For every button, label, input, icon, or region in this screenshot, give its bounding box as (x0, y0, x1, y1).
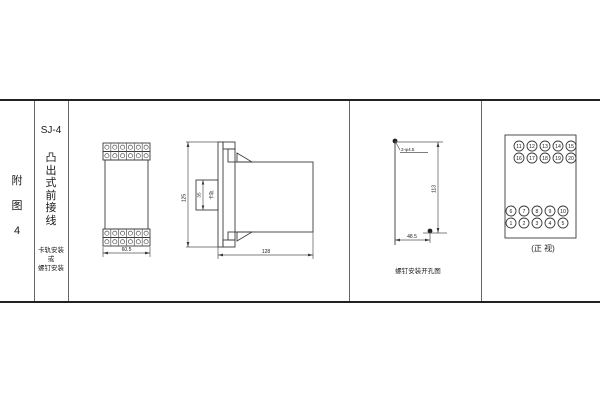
holes-label-text: 2-φ4.5 (401, 147, 415, 152)
type-title: 凸 出 式 前 接 线 (34, 152, 68, 227)
terminal-group-bottom: 6 7 8 9 10 1 2 3 4 5 (506, 206, 568, 228)
type-char-4: 前 (46, 190, 57, 203)
slot-dim-text: 35 (197, 192, 202, 198)
relay-body-side (235, 162, 313, 232)
front-plate (218, 142, 223, 247)
drill-diagram-caption: 螺钉安装开孔图 (383, 265, 453, 275)
terminal-view-caption: (正 视) (498, 243, 588, 254)
type-char-5: 接 (46, 202, 57, 215)
horizontal-dim-text: 48.5 (407, 234, 417, 240)
depth-dimension: 128 (218, 232, 313, 259)
terminal-15: 15 (568, 144, 574, 150)
terminal-3: 3 (536, 221, 539, 227)
type-char-6: 线 (46, 215, 57, 228)
terminal-14: 14 (555, 144, 561, 150)
terminal-4: 4 (549, 221, 552, 227)
mounting-note: 卡轨安装 或 螺钉安装 (34, 246, 68, 273)
drill-diagram: 2-φ4.5 113 48.5 (383, 133, 453, 251)
terminal-7: 7 (523, 209, 526, 215)
type-char-2: 出 (46, 165, 57, 178)
model-label: SJ-4 (34, 125, 68, 136)
terminal-10: 10 (560, 209, 566, 215)
column-divider-2 (68, 101, 69, 301)
rail-slot: 35 卡轨 (196, 180, 218, 210)
terminal-19: 19 (555, 156, 561, 162)
type-char-3: 式 (46, 177, 57, 190)
height-dim-text: 125 (182, 194, 188, 203)
figure-char-3: 4 (14, 219, 20, 244)
relay-body-front (105, 160, 148, 229)
terminal-front-view: 11 12 13 14 15 16 17 18 19 20 6 7 8 9 10… (498, 133, 588, 245)
terminal-16: 16 (516, 156, 522, 162)
terminal-2: 2 (523, 221, 526, 227)
terminal-group-top: 11 12 13 14 15 16 17 18 19 20 (514, 141, 576, 163)
terminal-block-top (103, 143, 150, 160)
terminal-8: 8 (536, 209, 539, 215)
drawing-sheet: 附 图 4 SJ-4 凸 出 式 前 接 线 卡轨安装 或 螺钉安装 (0, 0, 600, 400)
terminal-17: 17 (529, 156, 535, 162)
depth-dim-text: 128 (262, 249, 271, 255)
horizontal-dimension: 48.5 (395, 233, 430, 243)
width-dim-text: 60.5 (122, 247, 132, 253)
width-dimension: 60.5 (103, 247, 150, 257)
mount-hole-top (393, 139, 398, 144)
terminal-6: 6 (510, 209, 513, 215)
slot-label-text: 卡轨 (208, 190, 215, 200)
terminal-18: 18 (542, 156, 548, 162)
top-terminal-bracket (223, 142, 252, 162)
terminal-11: 11 (516, 144, 521, 150)
front-outline-drawing: 60.5 (95, 133, 165, 265)
figure-char-1: 附 (12, 169, 23, 194)
terminal-block-bottom (103, 229, 150, 246)
terminal-9: 9 (549, 209, 552, 215)
vertical-dim-text: 113 (432, 185, 438, 193)
type-char-1: 凸 (46, 152, 57, 165)
column-divider-3 (349, 101, 350, 301)
bottom-terminal-bracket (223, 232, 252, 247)
terminal-5: 5 (562, 221, 565, 227)
terminal-12: 12 (529, 144, 535, 150)
holes-callout: 2-φ4.5 (395, 141, 428, 153)
mounting-note-line3: 螺钉安装 (34, 264, 68, 273)
terminal-13: 13 (542, 144, 548, 150)
mounting-note-line1: 卡轨安装 (34, 246, 68, 255)
figure-char-2: 图 (12, 194, 23, 219)
terminal-1: 1 (510, 221, 513, 227)
terminal-20: 20 (568, 156, 574, 162)
column-divider-4 (481, 101, 482, 301)
figure-number-label: 附 图 4 (6, 169, 28, 244)
vertical-dimension: 113 (432, 142, 440, 233)
mounting-note-line2: 或 (34, 255, 68, 264)
side-view-drawing: 125 35 卡轨 128 (178, 133, 328, 263)
